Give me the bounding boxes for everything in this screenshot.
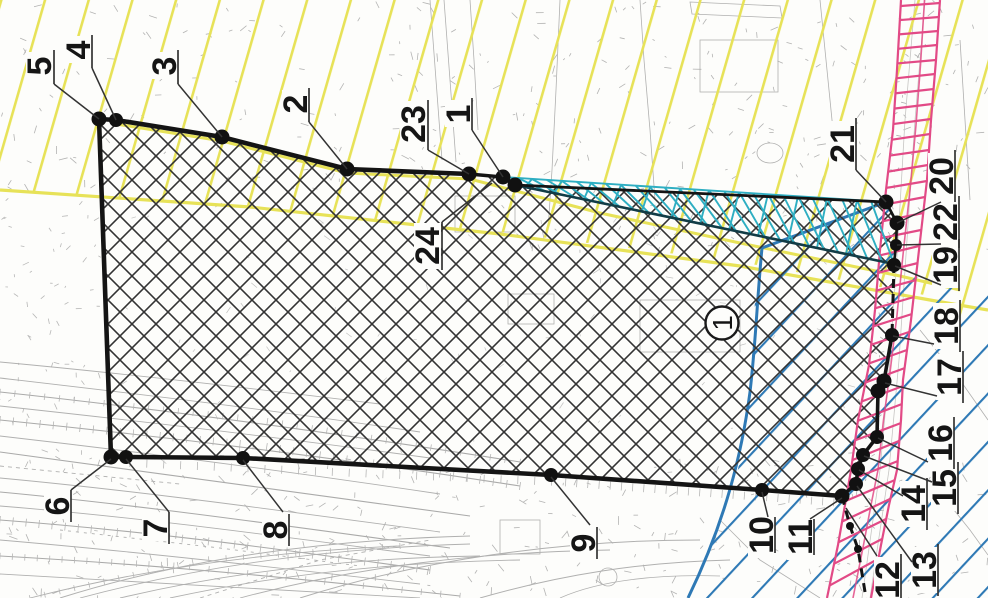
svg-text:20: 20 (923, 157, 961, 195)
svg-text:4: 4 (60, 40, 98, 59)
svg-text:16: 16 (922, 424, 960, 462)
svg-text:21: 21 (824, 125, 862, 163)
svg-text:5: 5 (21, 57, 59, 76)
svg-text:7: 7 (137, 519, 175, 538)
svg-text:11: 11 (782, 519, 820, 555)
svg-text:13: 13 (906, 551, 944, 589)
svg-text:14: 14 (895, 485, 933, 523)
svg-text:23: 23 (395, 105, 433, 143)
svg-text:22: 22 (927, 203, 965, 241)
svg-text:10: 10 (743, 516, 781, 554)
svg-text:2: 2 (277, 95, 315, 114)
svg-text:17: 17 (931, 358, 969, 396)
svg-text:6: 6 (39, 497, 77, 516)
svg-text:1: 1 (707, 315, 738, 331)
svg-text:12: 12 (869, 561, 907, 598)
svg-text:18: 18 (928, 307, 966, 345)
svg-text:24: 24 (409, 227, 447, 265)
svg-text:19: 19 (927, 246, 965, 284)
svg-text:3: 3 (146, 57, 184, 76)
svg-text:9: 9 (565, 534, 603, 553)
svg-text:8: 8 (257, 521, 295, 540)
svg-text:1: 1 (440, 105, 478, 124)
